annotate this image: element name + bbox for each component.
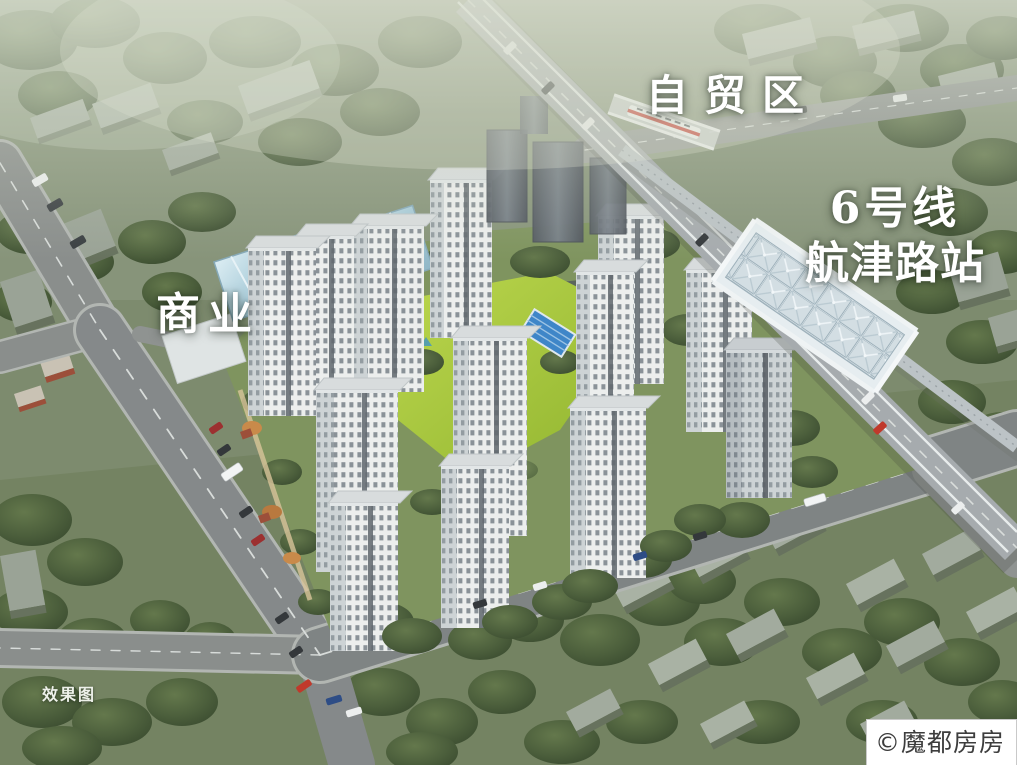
label-metro-line6-station: 6号线 航津路站 — [788, 184, 1002, 289]
caption-render-type: 效果图 — [42, 686, 96, 704]
label-metro-station: 航津路站 — [788, 239, 1002, 290]
rendered-scene — [0, 0, 1017, 765]
label-commercial: 商业 — [156, 290, 260, 341]
label-free-trade-zone: 自贸区 — [646, 72, 820, 120]
label-metro-line6: 6号线 — [788, 184, 1002, 235]
aerial-rendering: 自贸区 6号线 航津路站 商业 效果图 ©魔都房房房 — [0, 0, 1017, 765]
watermark: ©魔都房房房 — [866, 719, 1017, 765]
